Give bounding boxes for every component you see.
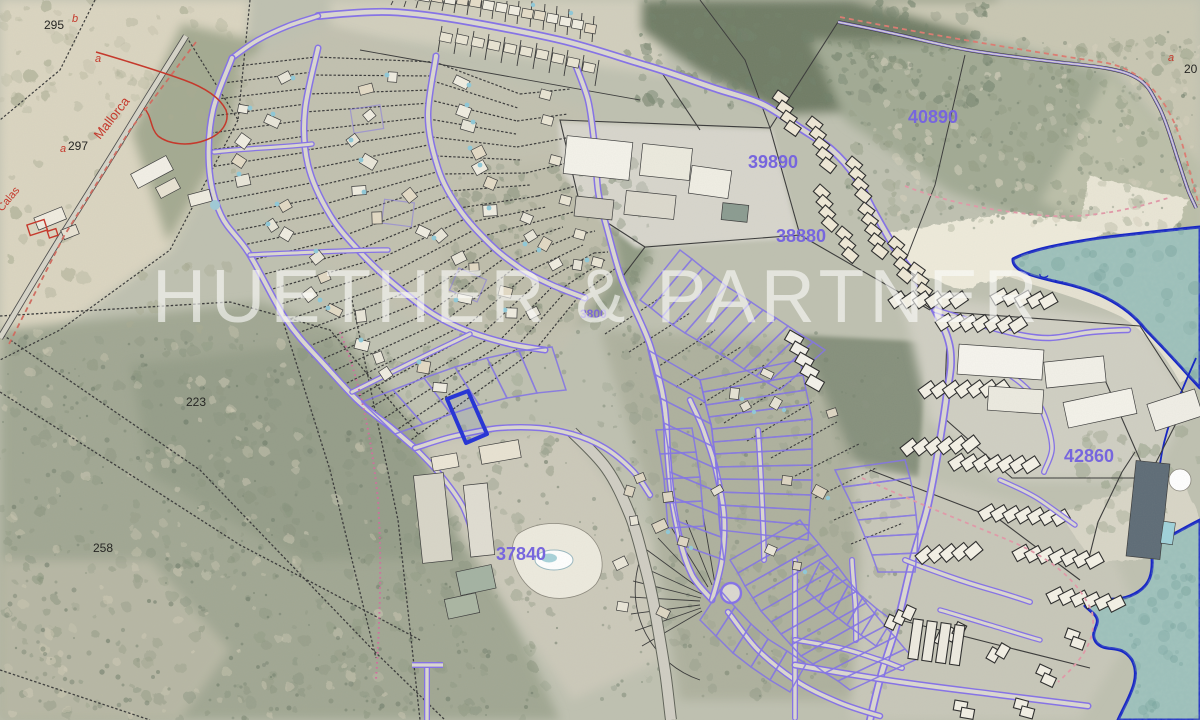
svg-text:HUETHER & PARTNER: HUETHER & PARTNER [152,254,1043,338]
